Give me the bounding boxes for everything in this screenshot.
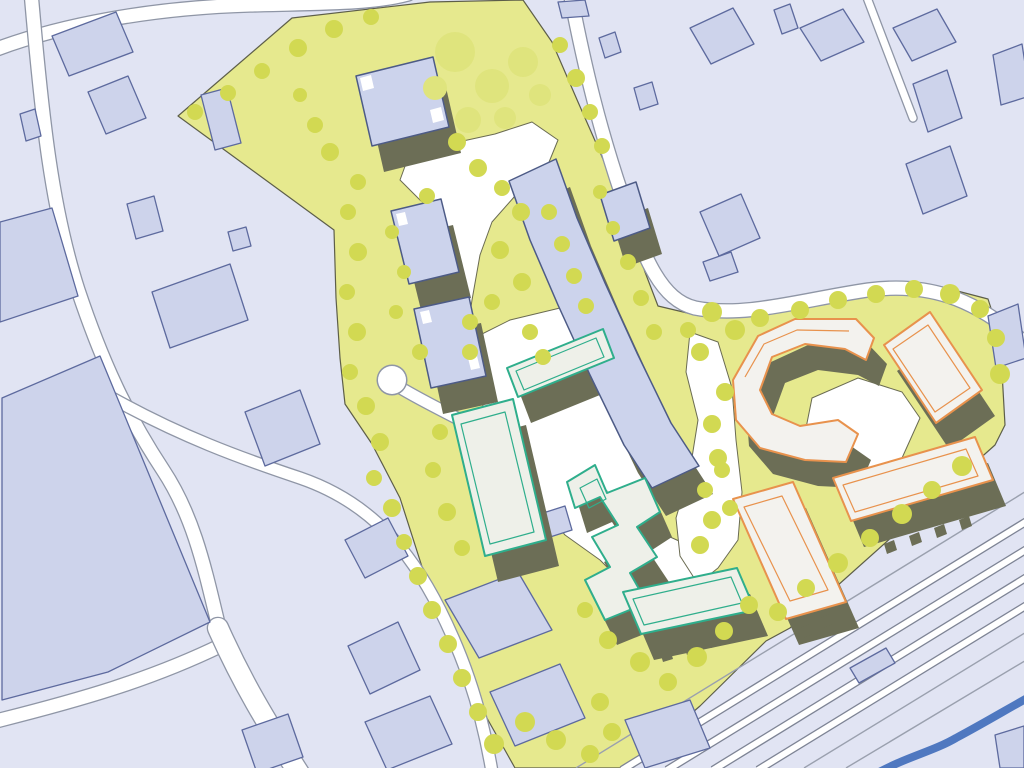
tree bbox=[423, 76, 447, 100]
tree bbox=[828, 553, 848, 573]
tree bbox=[535, 349, 551, 365]
tree bbox=[529, 84, 551, 106]
tree bbox=[725, 320, 745, 340]
tree bbox=[577, 602, 593, 618]
tree bbox=[703, 511, 721, 529]
tree bbox=[606, 221, 620, 235]
tree bbox=[397, 265, 411, 279]
tree bbox=[578, 298, 594, 314]
tree bbox=[342, 364, 358, 380]
tree bbox=[940, 284, 960, 304]
tree bbox=[522, 324, 538, 340]
tree bbox=[659, 673, 677, 691]
tree bbox=[546, 730, 566, 750]
tree bbox=[435, 32, 475, 72]
tree bbox=[630, 652, 650, 672]
tree bbox=[716, 383, 734, 401]
tree bbox=[971, 300, 989, 318]
tree bbox=[797, 579, 815, 597]
tree bbox=[448, 133, 466, 151]
tree bbox=[512, 203, 530, 221]
tree bbox=[454, 540, 470, 556]
tree bbox=[254, 63, 270, 79]
tree bbox=[321, 143, 339, 161]
tree bbox=[554, 236, 570, 252]
tree bbox=[389, 305, 403, 319]
tree bbox=[722, 500, 738, 516]
tree bbox=[923, 481, 941, 499]
tree bbox=[494, 180, 510, 196]
tree bbox=[513, 273, 531, 291]
tree bbox=[952, 456, 972, 476]
tree bbox=[867, 285, 885, 303]
tree bbox=[581, 745, 599, 763]
house bbox=[228, 227, 251, 251]
tree bbox=[187, 104, 203, 120]
tree bbox=[691, 343, 709, 361]
tree bbox=[687, 647, 707, 667]
tree bbox=[409, 567, 427, 585]
site-plan-map bbox=[0, 0, 1024, 768]
tree bbox=[987, 329, 1005, 347]
tree bbox=[740, 596, 758, 614]
tree bbox=[371, 433, 389, 451]
tree bbox=[646, 324, 662, 340]
tree bbox=[861, 529, 879, 547]
tree bbox=[325, 20, 343, 38]
tree bbox=[703, 415, 721, 433]
tree bbox=[469, 703, 487, 721]
house bbox=[558, 0, 589, 18]
tree bbox=[541, 204, 557, 220]
tree bbox=[484, 734, 504, 754]
tree bbox=[905, 280, 923, 298]
tree bbox=[439, 635, 457, 653]
tree bbox=[385, 225, 399, 239]
tree bbox=[769, 603, 787, 621]
tree bbox=[702, 302, 722, 322]
tree bbox=[691, 536, 709, 554]
tree bbox=[412, 344, 428, 360]
tree bbox=[462, 314, 478, 330]
tree bbox=[591, 693, 609, 711]
tree bbox=[432, 424, 448, 440]
tree bbox=[349, 243, 367, 261]
tree bbox=[366, 470, 382, 486]
tree bbox=[438, 503, 456, 521]
tree bbox=[293, 88, 307, 102]
tree bbox=[508, 47, 538, 77]
tree bbox=[582, 104, 598, 120]
tree bbox=[892, 504, 912, 524]
tree bbox=[462, 344, 478, 360]
tree bbox=[491, 241, 509, 259]
tree bbox=[751, 309, 769, 327]
tree bbox=[357, 397, 375, 415]
tree bbox=[680, 322, 696, 338]
site-plan-page bbox=[0, 0, 1024, 768]
tree bbox=[829, 291, 847, 309]
tree bbox=[552, 37, 568, 53]
tree bbox=[715, 622, 733, 640]
tree bbox=[307, 117, 323, 133]
tree bbox=[484, 294, 500, 310]
tree bbox=[455, 107, 481, 133]
tree bbox=[383, 499, 401, 517]
tree bbox=[363, 9, 379, 25]
tree bbox=[419, 188, 435, 204]
tree bbox=[567, 69, 585, 87]
tree bbox=[425, 462, 441, 478]
tree bbox=[469, 159, 487, 177]
tree bbox=[697, 482, 713, 498]
tree bbox=[594, 138, 610, 154]
tree bbox=[475, 69, 509, 103]
tree bbox=[599, 631, 617, 649]
tree bbox=[453, 669, 471, 687]
tree bbox=[396, 534, 412, 550]
tree bbox=[566, 268, 582, 284]
tree bbox=[220, 85, 236, 101]
tree bbox=[494, 107, 516, 129]
tree bbox=[990, 364, 1010, 384]
tree bbox=[791, 301, 809, 319]
tree bbox=[603, 723, 621, 741]
culdesac bbox=[378, 366, 406, 394]
road-ends bbox=[377, 365, 408, 396]
tree bbox=[350, 174, 366, 190]
tree bbox=[289, 39, 307, 57]
tree bbox=[348, 323, 366, 341]
tree bbox=[423, 601, 441, 619]
tree bbox=[593, 185, 607, 199]
tree bbox=[714, 462, 730, 478]
tree bbox=[515, 712, 535, 732]
tree bbox=[340, 204, 356, 220]
tree bbox=[633, 290, 649, 306]
tree bbox=[620, 254, 636, 270]
tree bbox=[339, 284, 355, 300]
